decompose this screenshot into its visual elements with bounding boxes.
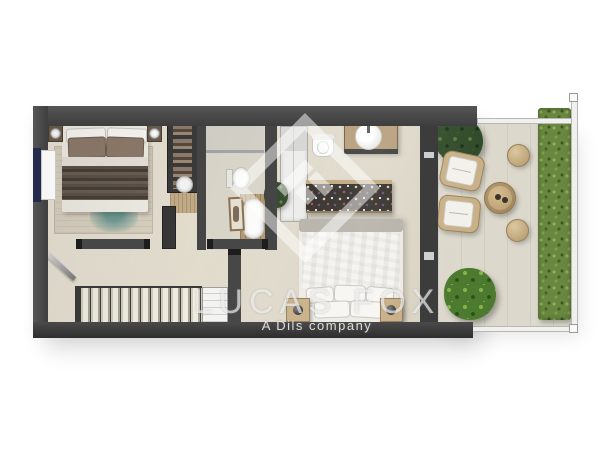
toilet-seat <box>317 141 329 154</box>
bedroom1-pillow-brown <box>68 136 107 158</box>
wall-end-cap <box>262 239 268 249</box>
table-bowl <box>502 197 508 203</box>
shower-zone-floor <box>206 126 264 150</box>
bathtub-icon <box>243 199 264 239</box>
bedroom2-duvet <box>302 232 400 292</box>
terrace-railing-top <box>477 118 572 124</box>
artwork-figure <box>233 206 239 222</box>
bedroom2-pillow <box>314 300 351 318</box>
wall-stairs-right <box>228 249 241 322</box>
bedroom2-footboard-bench <box>299 219 403 232</box>
table-lamp-icon <box>386 305 396 315</box>
terrace-pouf-2 <box>506 219 529 242</box>
wall-end-cap <box>228 249 241 255</box>
terrace-railing-right <box>571 95 578 333</box>
wall-end-cap <box>76 239 82 249</box>
wall-hall-mid <box>207 239 268 249</box>
terrace-pouf-1 <box>507 144 530 167</box>
hall-cabinet-dark <box>162 206 176 249</box>
wardrobe-mirror-panel <box>281 127 307 151</box>
wall-bathroom1-right <box>265 126 277 250</box>
wall-left <box>33 106 48 338</box>
wall-bedroom1-bottom <box>76 239 150 249</box>
glazing-glass-panel <box>424 252 434 260</box>
terrace-hedge <box>538 108 571 320</box>
wall-top <box>33 106 477 126</box>
palm-plant-icon <box>444 268 496 320</box>
lounge-chair-2 <box>436 194 482 234</box>
table-lamp-icon <box>50 128 61 139</box>
floor-plan-canvas: LUCAS FOX A Dils company <box>0 0 600 450</box>
wall-end-cap <box>144 239 150 249</box>
bedroom1-pillow-brown <box>106 136 145 158</box>
terrace-railing-bottom <box>470 326 576 332</box>
bedroom2-dresser <box>306 180 392 213</box>
wall-end-cap <box>207 239 213 249</box>
table-lamp-icon <box>293 305 303 315</box>
shower-glass-screen <box>206 150 264 153</box>
wall-bottom <box>33 322 473 338</box>
staircase-edge <box>75 286 81 323</box>
bedroom1-throw-blanket <box>62 166 148 200</box>
wardrobe-door-split <box>293 127 294 221</box>
window-sill <box>41 150 56 200</box>
window-icon <box>33 148 41 202</box>
staircase <box>80 286 202 323</box>
wall-bathroom1-left <box>197 126 206 250</box>
table-bowl <box>495 194 501 200</box>
toilet-tank <box>312 134 334 140</box>
glazing-glass-panel <box>424 152 434 158</box>
stair-storage-cabinet <box>202 287 228 323</box>
table-lamp-icon <box>149 128 160 139</box>
toilet-icon <box>232 167 250 189</box>
round-stool <box>176 176 193 193</box>
railing-post <box>569 324 578 333</box>
railing-post <box>569 93 578 102</box>
